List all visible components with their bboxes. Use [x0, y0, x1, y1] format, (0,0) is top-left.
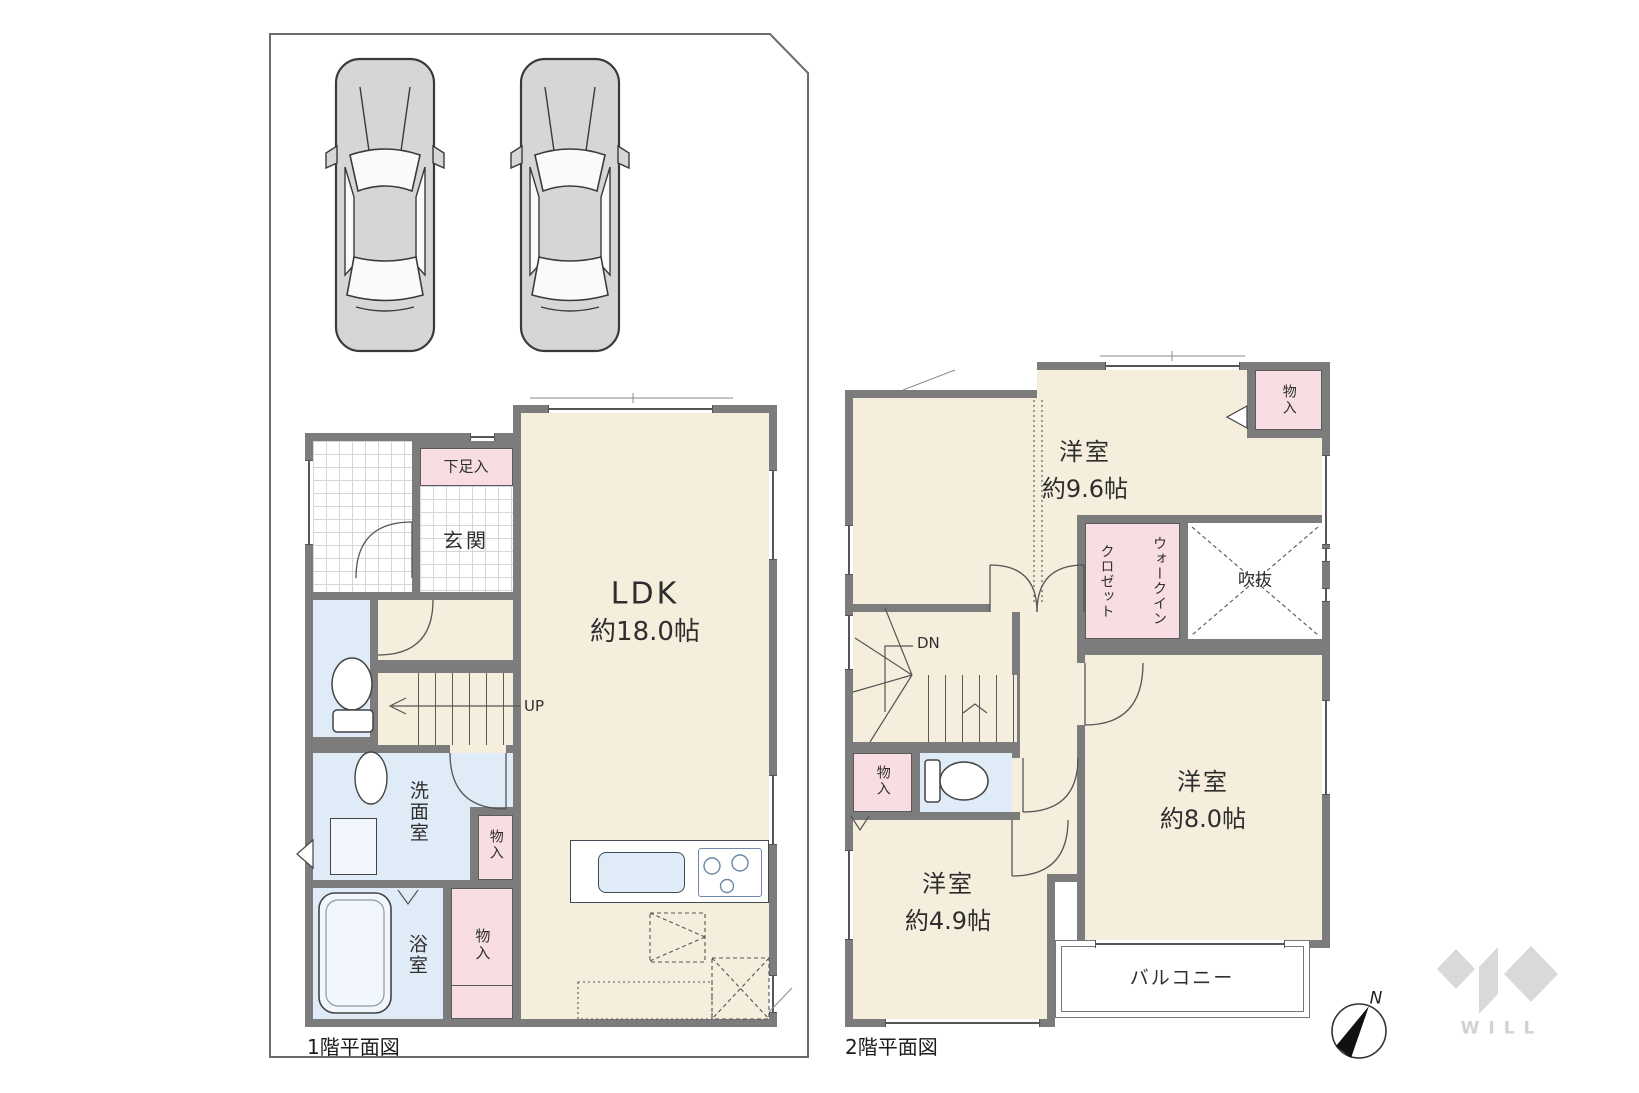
toilet-2f-door-gap: [1012, 758, 1020, 812]
window: [548, 405, 713, 413]
room-80-door-gap: [1077, 663, 1085, 725]
stairs-dn-label: DN: [917, 634, 940, 652]
floor1-caption: 1階平面図: [307, 1031, 400, 1060]
room-80-size-label: 約8.0帖: [1160, 804, 1246, 834]
hallway-1f: [378, 600, 513, 660]
washroom-door-gap: [450, 745, 506, 753]
window: [305, 460, 313, 545]
wic-label-line2: クロゼット: [1097, 536, 1115, 626]
ldk-area: [521, 413, 769, 1019]
room-80-area: [1085, 655, 1322, 940]
window: [885, 1019, 1040, 1027]
window: [845, 850, 853, 940]
window: [1322, 455, 1330, 545]
storage-2f-top-label: 物入: [1279, 384, 1297, 416]
window: [1095, 940, 1285, 948]
room-49-name-label: 洋室: [922, 869, 974, 899]
window: [1105, 362, 1240, 370]
wic-label: ウォークイン クロゼット: [1062, 536, 1202, 626]
car-icon: [511, 59, 629, 351]
stairs-2f: [912, 675, 1017, 742]
will-logo-icon: [1437, 946, 1558, 1014]
window: [845, 615, 853, 670]
storage-bath-divider: [451, 985, 513, 986]
room-96-size-label: 約9.6帖: [1042, 474, 1128, 504]
compass-north-label: N: [1370, 988, 1383, 1009]
ldk-size-label: 約18.0帖: [590, 616, 700, 649]
toilet-room-2f: [920, 753, 1012, 812]
storage-2f-hall-label: 物入: [873, 765, 891, 797]
washing-machine: [330, 818, 377, 875]
bathroom-label: 浴室: [404, 934, 428, 976]
entrance-label: 玄関: [443, 529, 489, 554]
window: [769, 775, 777, 845]
ldk-name-label: LDK: [611, 575, 680, 613]
floor2-caption: 2階平面図: [845, 1031, 938, 1060]
window: [769, 470, 777, 560]
window: [1322, 700, 1330, 795]
storage-hall-1f-label: 物入: [486, 829, 504, 861]
stairs-2f-winder: [853, 675, 912, 742]
compass-icon: [1332, 1004, 1386, 1058]
stairs-1f-landing: [378, 673, 402, 745]
kitchen-sink: [598, 852, 685, 893]
kitchen-stove: [698, 848, 762, 897]
void-label: 吹抜: [1238, 570, 1272, 591]
storage-bath-label: 物入: [473, 928, 492, 962]
wic-label-line1: ウォークイン: [1150, 536, 1168, 626]
will-logo-text: WILL: [1461, 1018, 1544, 1039]
car-icon: [326, 59, 444, 351]
stairs-1f: [402, 673, 513, 745]
room-49-size-label: 約4.9帖: [905, 906, 991, 936]
toilet-room-1f: [313, 600, 370, 737]
window: [1322, 588, 1330, 602]
washroom-label: 洗面室: [405, 781, 429, 844]
plan-linework: [0, 0, 1639, 1093]
window: [845, 525, 853, 575]
shoe-storage-label: 下足入: [443, 458, 488, 477]
room-96-name-label: 洋室: [1059, 437, 1111, 467]
porch-area: [313, 441, 412, 592]
stairs-up-label: UP: [524, 697, 544, 715]
balcony-label: バルコニー: [1130, 967, 1235, 991]
floorplan-page: 下足入 玄関 LDK 約18.0帖 UP 洗面室 物入 浴室 物入 1階平面図 …: [0, 0, 1639, 1093]
room-96-west-area: [853, 398, 1037, 604]
window: [470, 433, 495, 441]
window: [1322, 548, 1330, 562]
door-gap-kitchen: [769, 975, 777, 1013]
room-80-name-label: 洋室: [1177, 767, 1229, 797]
